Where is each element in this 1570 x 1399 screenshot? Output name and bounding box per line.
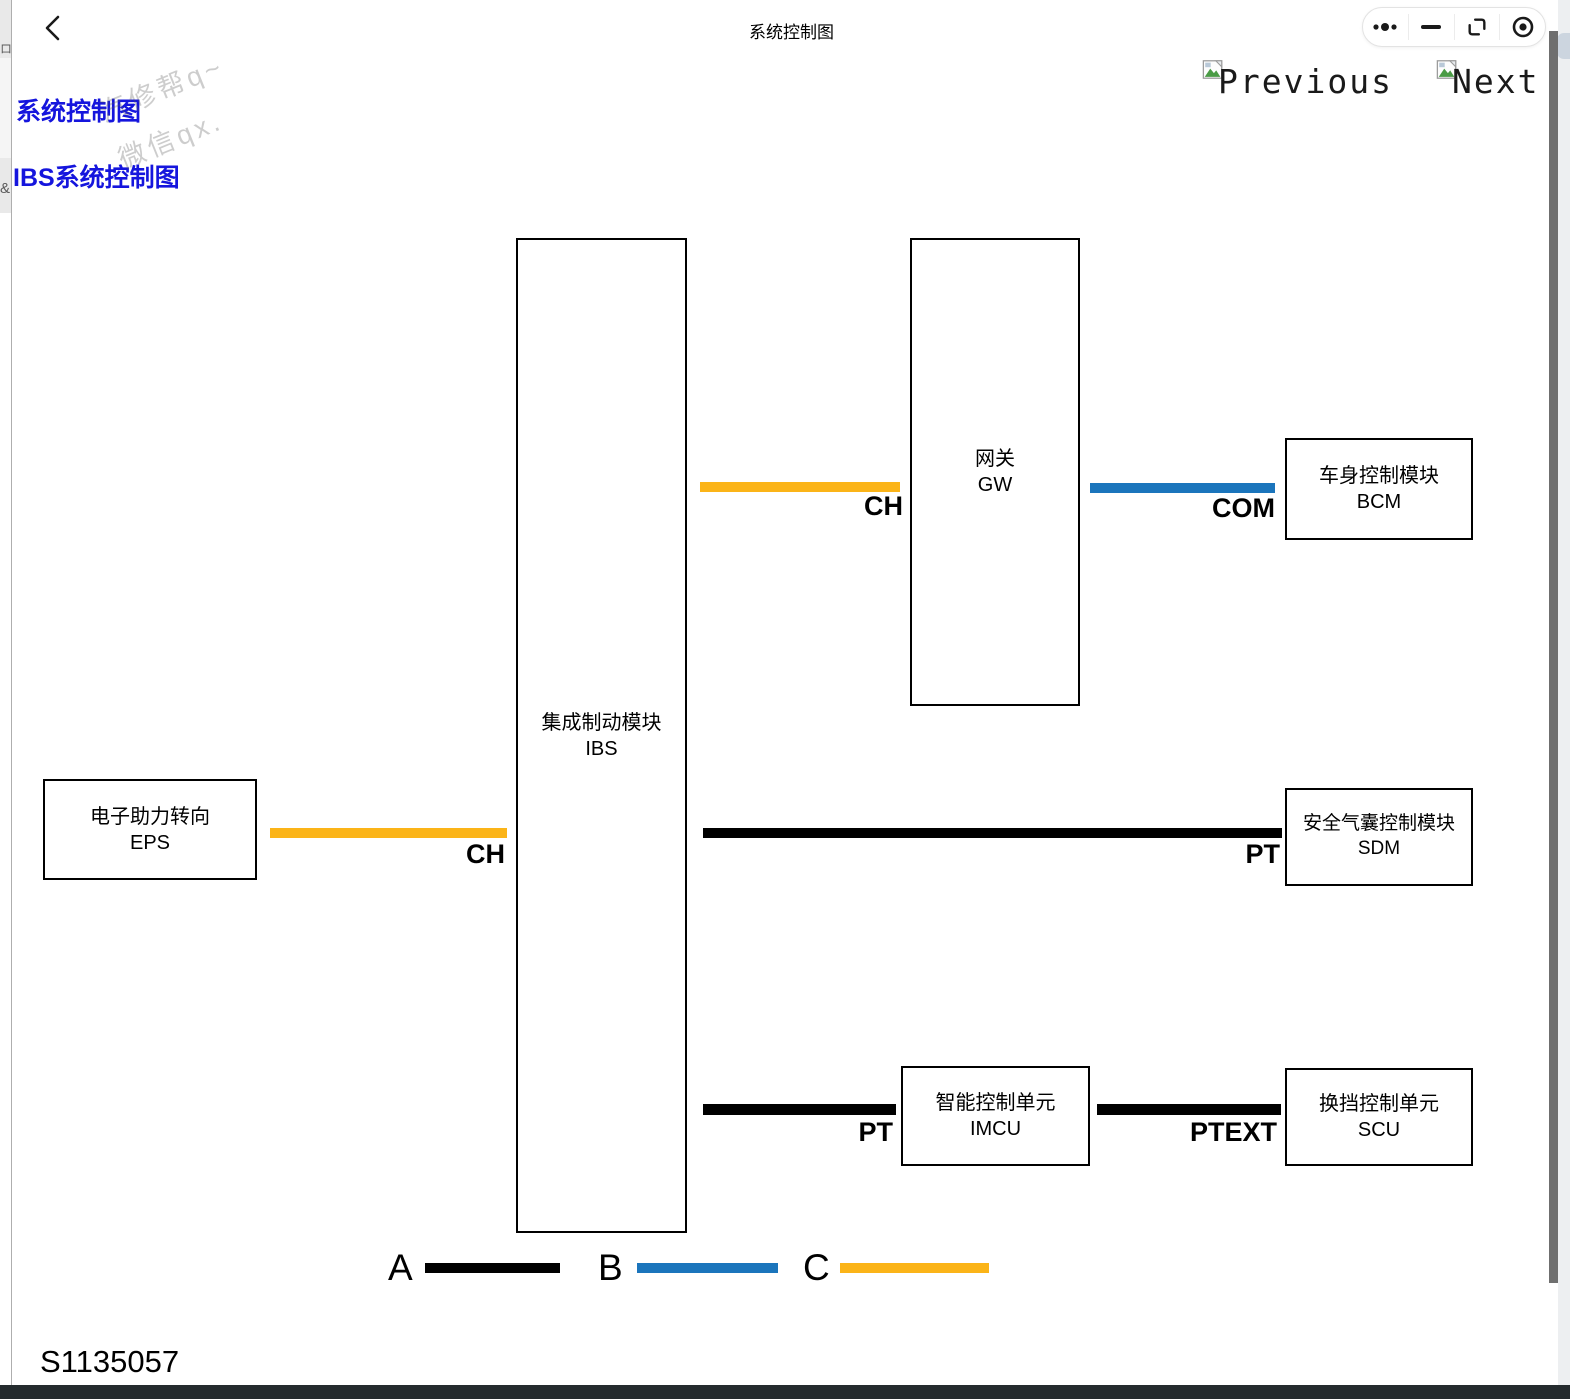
node-scu: 换挡控制单元 SCU [1285, 1068, 1473, 1166]
node-code: IMCU [970, 1116, 1021, 1142]
bus-line-eps-ibs [270, 828, 507, 838]
restore-button[interactable] [1455, 8, 1500, 46]
bus-label: PTEXT [1157, 1117, 1277, 1148]
title-bar: 系统控制图 [13, 0, 1570, 56]
figure-id: S1135057 [40, 1344, 179, 1380]
underlying-window-edge: ロ/ & [0, 0, 12, 1399]
bus-label: CH [420, 839, 505, 870]
strip-shade [0, 58, 12, 158]
node-gw: 网关 GW [910, 238, 1080, 706]
node-code: SCU [1358, 1117, 1400, 1143]
bus-label: PT [1190, 839, 1280, 870]
minimize-button[interactable] [1409, 8, 1454, 46]
node-eps: 电子助力转向 EPS [43, 779, 257, 880]
node-sdm: 安全气囊控制模块 SDM [1285, 788, 1473, 886]
node-code: GW [978, 472, 1012, 498]
clipped-text-fragment: ロ/ [0, 40, 12, 57]
legend-line-c [840, 1263, 989, 1273]
node-code: IBS [585, 736, 617, 762]
legend-line-b [637, 1263, 778, 1273]
clipped-text-fragment: & [0, 180, 10, 197]
restore-icon [1466, 16, 1488, 38]
bus-label: PT [803, 1117, 893, 1148]
app-window: ロ/ & 系统控制图 [0, 0, 1570, 1399]
node-imcu: 智能控制单元 IMCU [901, 1066, 1090, 1166]
exit-button[interactable] [1500, 8, 1545, 46]
node-ibs: 集成制动模块 IBS [516, 238, 687, 1233]
minimize-icon [1421, 24, 1441, 30]
miniprogram-capsule [1362, 7, 1546, 47]
legend-label: C [803, 1247, 830, 1289]
node-name: 安全气囊控制模块 [1303, 812, 1455, 837]
page-title: 系统控制图 [13, 18, 1570, 43]
node-code: BCM [1357, 489, 1401, 515]
bottom-bar [0, 1385, 1570, 1399]
node-name: 换挡控制单元 [1319, 1091, 1439, 1117]
node-name: 智能控制单元 [936, 1090, 1056, 1116]
more-button[interactable] [1363, 8, 1408, 46]
bus-label: CH [818, 491, 903, 522]
node-bcm: 车身控制模块 BCM [1285, 438, 1473, 540]
previous-link[interactable]: Previous [1218, 62, 1393, 101]
more-icon [1372, 21, 1398, 33]
node-code: SDM [1358, 837, 1400, 862]
legend-line-a [425, 1263, 560, 1273]
scrollbar-top-tab [1557, 33, 1570, 59]
bus-line-gw-bcm [1090, 483, 1275, 493]
link-system-control-diagram[interactable]: 系统控制图 [16, 92, 141, 128]
link-ibs-system-control-diagram[interactable]: IBS系统控制图 [13, 158, 180, 194]
next-link[interactable]: Next [1452, 62, 1539, 101]
exit-target-icon [1511, 15, 1535, 39]
scrollbar-thumb[interactable] [1549, 31, 1558, 1283]
node-code: EPS [130, 830, 170, 856]
node-name: 网关 [975, 446, 1015, 472]
bus-line-imcu-scu [1097, 1104, 1281, 1115]
scrollbar-track[interactable] [1558, 0, 1570, 1399]
node-name: 集成制动模块 [542, 710, 662, 736]
bus-line-ibs-sdm [703, 828, 1282, 838]
node-name: 车身控制模块 [1319, 463, 1439, 489]
legend-label: A [388, 1247, 413, 1289]
bus-line-ibs-gw [700, 482, 900, 492]
bus-label: COM [1175, 493, 1275, 524]
node-name: 电子助力转向 [90, 804, 210, 830]
legend-label: B [598, 1247, 623, 1289]
bus-line-ibs-imcu [703, 1104, 896, 1115]
